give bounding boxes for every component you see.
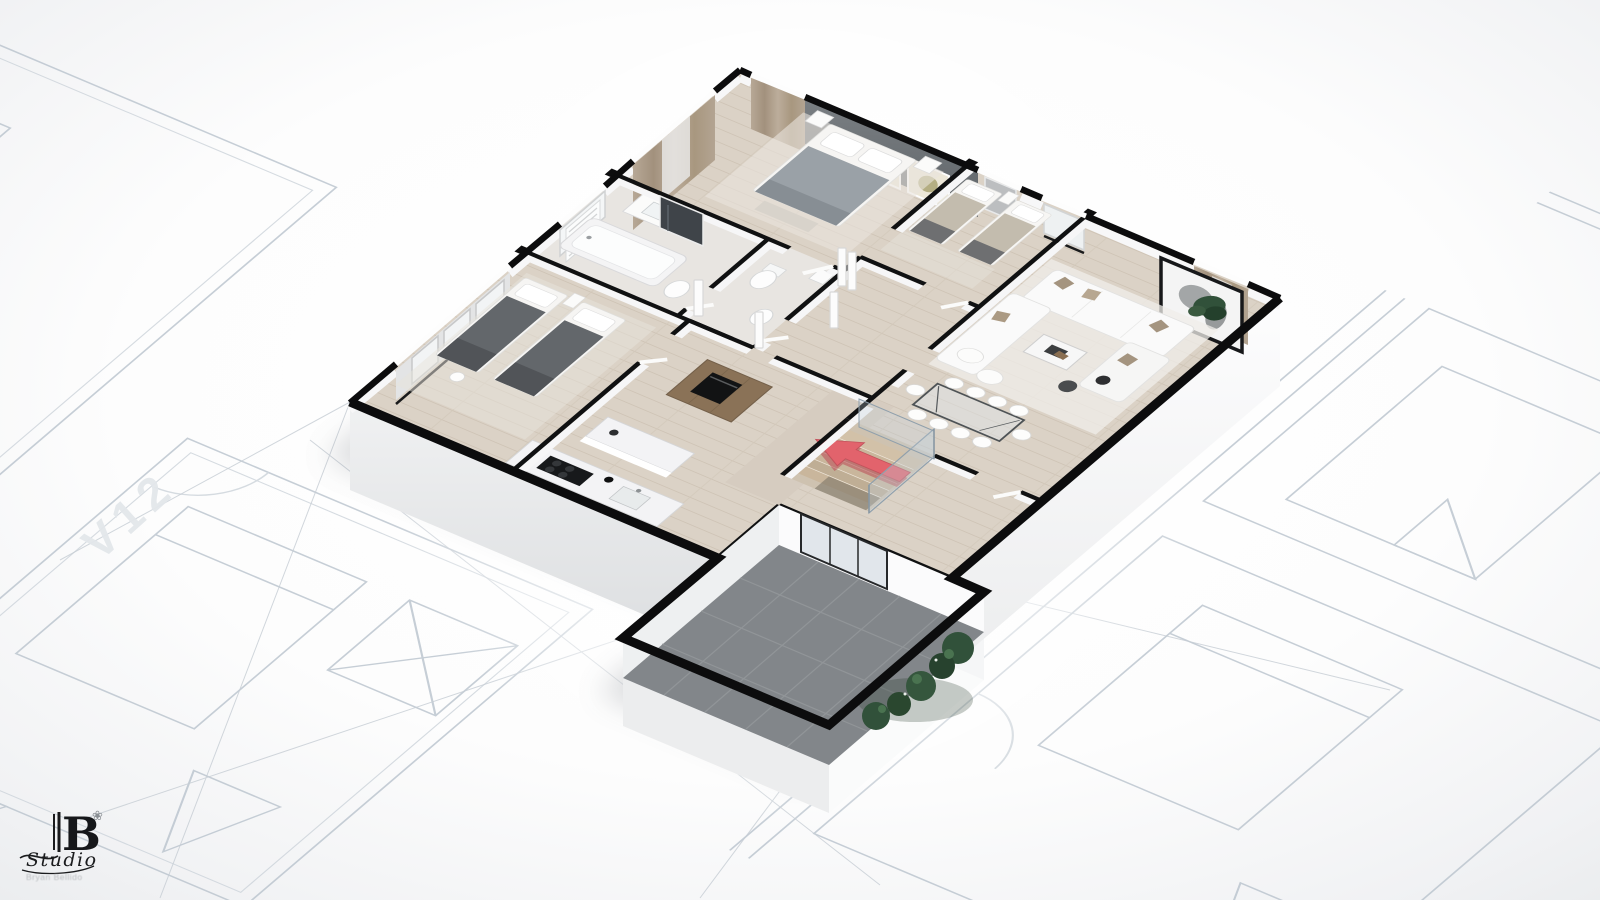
floorplan-render-page: V12 B ❀ Studio Bryan Bellido — [0, 0, 1600, 900]
flower-icon: ❀ — [92, 808, 103, 823]
logo-studio-label: Studio — [26, 849, 98, 871]
logo-credit: Bryan Bellido — [26, 872, 83, 882]
floorplan-render: V12 B ❀ Studio Bryan Bellido — [0, 0, 1600, 900]
